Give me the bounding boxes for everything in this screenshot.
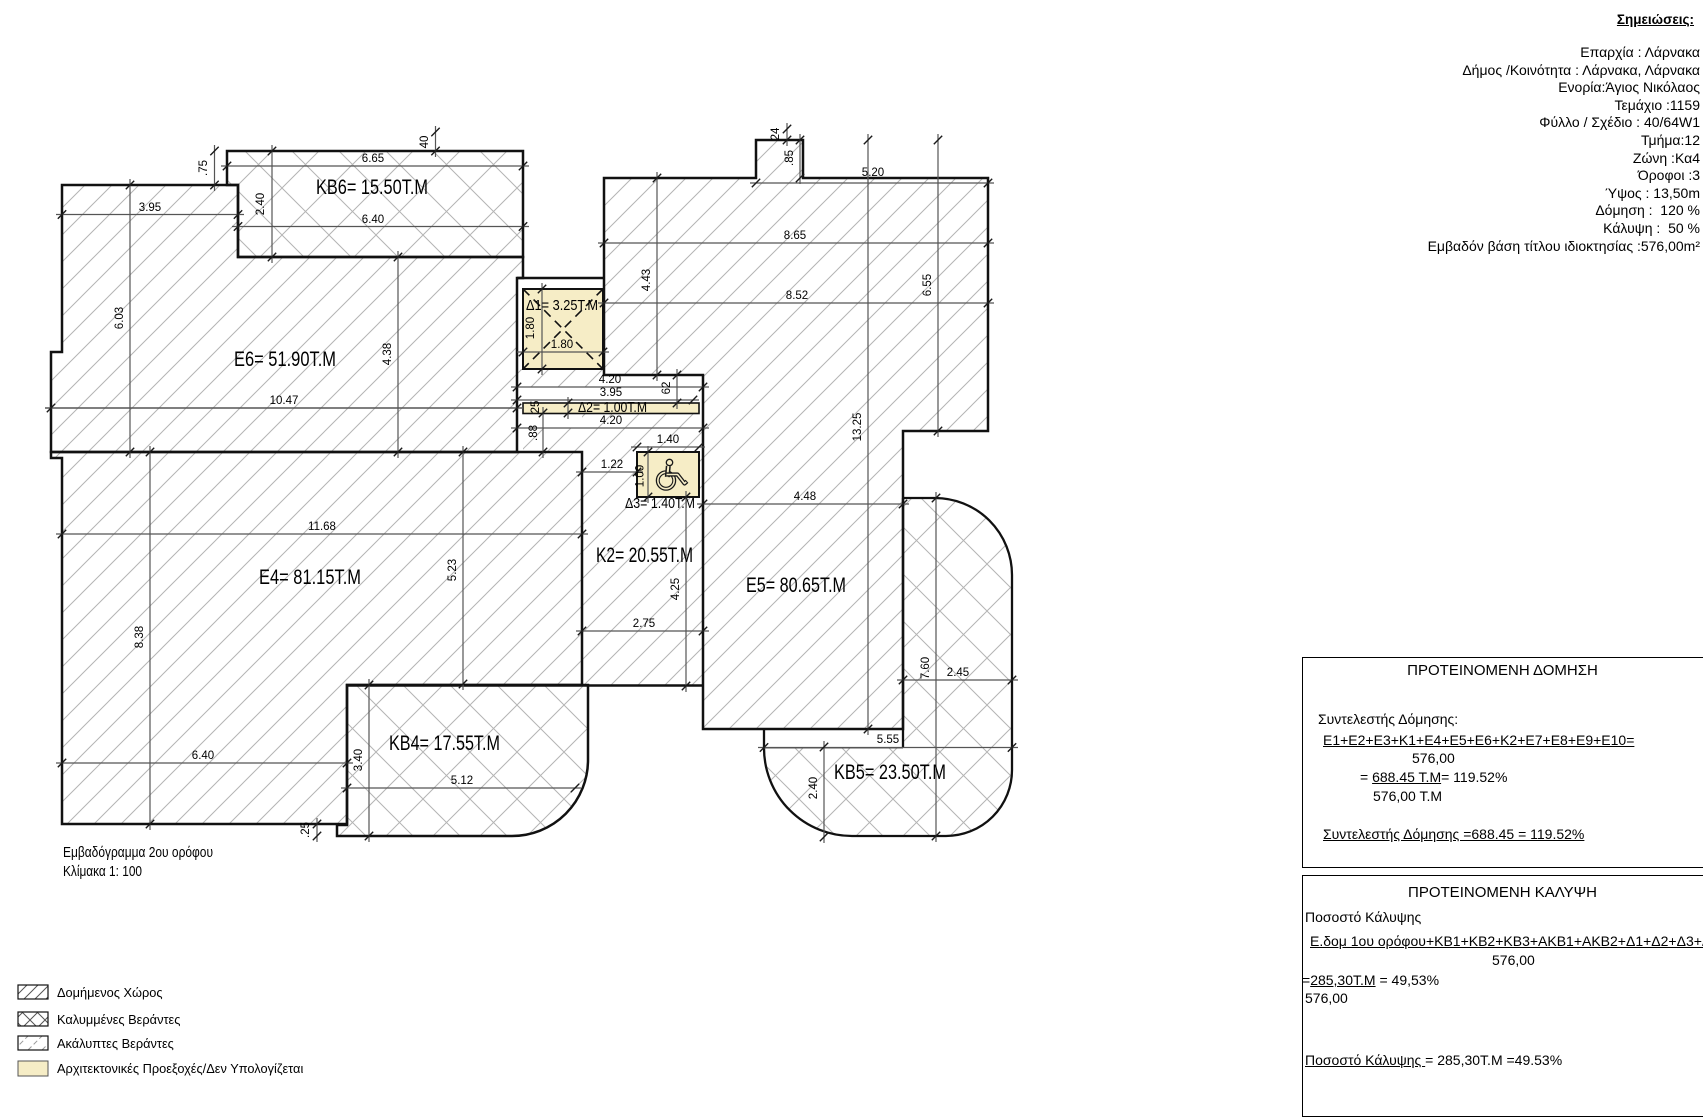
svg-text:Δ1= 3.25Τ.Μ: Δ1= 3.25Τ.Μ <box>526 298 598 314</box>
svg-text:1.80: 1.80 <box>525 317 537 339</box>
svg-text:40: 40 <box>419 136 431 149</box>
svg-text:Εμβαδόγραμμα 2ου ορόφου: Εμβαδόγραμμα 2ου ορόφου <box>63 844 213 861</box>
svg-text:K2= 20.55Τ.Μ: K2= 20.55Τ.Μ <box>596 544 693 567</box>
svg-text:3.95: 3.95 <box>139 202 161 214</box>
svg-text:6.03: 6.03 <box>114 307 126 329</box>
svg-text:8.65: 8.65 <box>784 230 806 242</box>
svg-text:Καλυμμένες Βεράντες: Καλυμμένες Βεράντες <box>57 1012 180 1027</box>
svg-text:2.40: 2.40 <box>808 777 820 799</box>
svg-text:6.55: 6.55 <box>922 274 934 296</box>
svg-text:62: 62 <box>661 382 673 395</box>
svg-text:.25: .25 <box>300 822 312 838</box>
svg-text:3.95: 3.95 <box>600 387 622 399</box>
svg-text:2.45: 2.45 <box>947 667 969 679</box>
svg-text:.75: .75 <box>198 160 210 176</box>
svg-text:1.22: 1.22 <box>601 459 623 471</box>
svg-text:4.38: 4.38 <box>382 343 394 365</box>
svg-text:Αρχιτεκτονικές Προεξοχές/Δεν Υ: Αρχιτεκτονικές Προεξοχές/Δεν Υπολογίζετα… <box>57 1061 303 1076</box>
svg-text:KB4= 17.55Τ.Μ: KB4= 17.55Τ.Μ <box>389 732 500 755</box>
svg-text:6.65: 6.65 <box>362 153 384 165</box>
svg-text:5.12: 5.12 <box>451 775 473 787</box>
svg-text:4.20: 4.20 <box>599 374 621 386</box>
svg-text:1.80: 1.80 <box>551 339 573 351</box>
svg-text:6.40: 6.40 <box>192 750 214 762</box>
svg-text:4.48: 4.48 <box>794 491 816 503</box>
svg-text:Δ2= 1.00Τ.Μ: Δ2= 1.00Τ.Μ <box>578 400 647 416</box>
svg-text:Κλίμακα 1: 100: Κλίμακα 1: 100 <box>63 863 142 880</box>
svg-text:E5= 80.65Τ.Μ: E5= 80.65Τ.Μ <box>746 574 846 597</box>
svg-text:4.20: 4.20 <box>600 415 622 427</box>
svg-text:25: 25 <box>530 401 542 414</box>
svg-text:1.40: 1.40 <box>657 434 679 446</box>
svg-text:2.40: 2.40 <box>255 193 267 215</box>
svg-text:KB6= 15.50Τ.Μ: KB6= 15.50Τ.Μ <box>316 176 428 199</box>
svg-text:KB5= 23.50Τ.Μ: KB5= 23.50Τ.Μ <box>834 761 946 784</box>
svg-text:.85: .85 <box>784 150 796 166</box>
svg-text:11.68: 11.68 <box>308 521 336 533</box>
svg-text:5.20: 5.20 <box>862 167 884 179</box>
svg-text:E4= 81.15Τ.Μ: E4= 81.15Τ.Μ <box>259 566 361 589</box>
svg-text:8.38: 8.38 <box>134 626 146 648</box>
svg-text:3.40: 3.40 <box>353 749 365 771</box>
svg-text:Δομήμενος Χώρος: Δομήμενος Χώρος <box>57 985 163 1000</box>
svg-text:7.60: 7.60 <box>920 657 932 679</box>
svg-text:24: 24 <box>770 127 782 140</box>
svg-text:4.25: 4.25 <box>670 578 682 600</box>
svg-text:5.23: 5.23 <box>447 559 459 581</box>
svg-text:2.75: 2.75 <box>633 618 655 630</box>
svg-text:5.55: 5.55 <box>877 734 899 746</box>
svg-text:E6= 51.90Τ.Μ: E6= 51.90Τ.Μ <box>234 348 336 371</box>
svg-text:8.52: 8.52 <box>786 290 808 302</box>
svg-text:4.43: 4.43 <box>641 269 653 291</box>
svg-text:6.40: 6.40 <box>362 214 384 226</box>
svg-text:13.25: 13.25 <box>852 413 864 442</box>
svg-text:10.47: 10.47 <box>270 395 299 407</box>
svg-text:Ακάλυπτες Βεράντες: Ακάλυπτες Βεράντες <box>57 1036 174 1051</box>
svg-text:1.00: 1.00 <box>635 465 647 487</box>
svg-text:.88: .88 <box>528 425 540 441</box>
